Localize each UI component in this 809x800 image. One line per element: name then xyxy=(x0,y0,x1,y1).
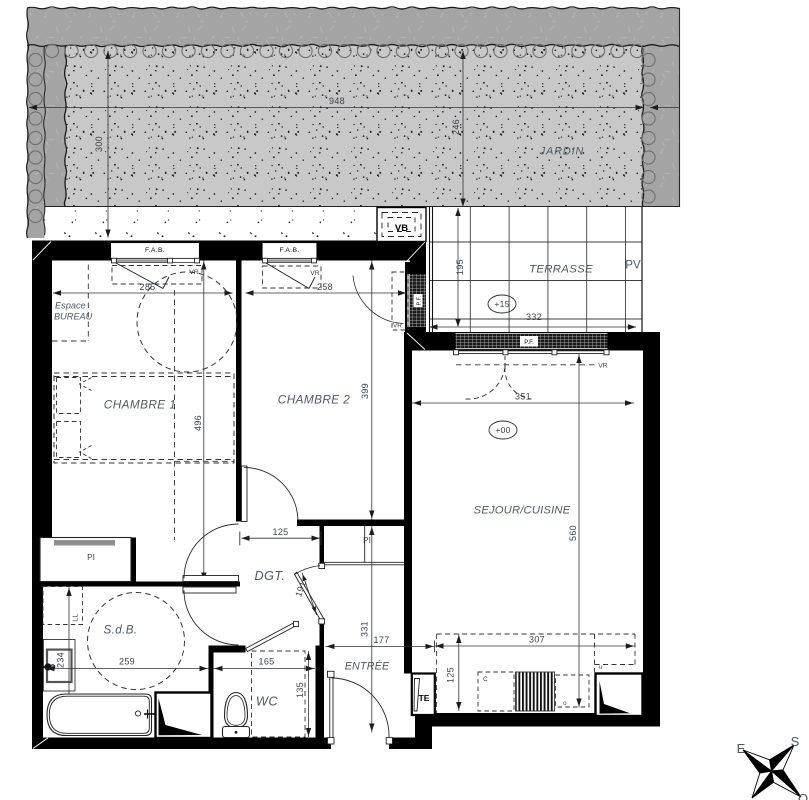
svg-text:Espace: Espace xyxy=(55,301,86,311)
svg-text:300: 300 xyxy=(94,136,104,152)
svg-text:CHAMBRE 2: CHAMBRE 2 xyxy=(278,393,350,407)
svg-text:VR: VR xyxy=(310,270,320,277)
svg-text:o: o xyxy=(563,700,567,707)
svg-text:PI: PI xyxy=(363,536,371,545)
svg-text:332: 332 xyxy=(526,312,542,322)
svg-text:399: 399 xyxy=(360,383,370,399)
svg-text:234: 234 xyxy=(56,652,66,668)
svg-text:F.A.B.: F.A.B. xyxy=(145,247,165,254)
svg-text:948: 948 xyxy=(329,96,345,106)
svg-text:u: u xyxy=(599,665,602,671)
svg-text:DGT.: DGT. xyxy=(255,569,286,583)
svg-text:560: 560 xyxy=(568,525,578,541)
svg-text:S: S xyxy=(791,734,800,749)
svg-text:307: 307 xyxy=(529,635,545,645)
svg-text:PV: PV xyxy=(625,259,641,272)
svg-text:191: 191 xyxy=(293,580,308,598)
svg-text:O: O xyxy=(798,791,808,800)
svg-text:JARDIN: JARDIN xyxy=(539,146,584,158)
svg-text:VR: VR xyxy=(598,363,608,370)
svg-text:246: 246 xyxy=(451,119,461,135)
svg-text:TE: TE xyxy=(419,693,430,703)
svg-text:LL: LL xyxy=(73,613,80,621)
svg-text:195: 195 xyxy=(455,259,465,275)
svg-text:331: 331 xyxy=(360,621,370,637)
svg-text:177: 177 xyxy=(374,635,390,645)
svg-text:+15: +15 xyxy=(494,299,509,309)
svg-text:BUREAU: BUREAU xyxy=(54,312,93,322)
svg-text:TERRASSE: TERRASSE xyxy=(529,264,593,276)
svg-text:125: 125 xyxy=(273,527,289,537)
svg-text:496: 496 xyxy=(193,415,203,431)
svg-text:+00: +00 xyxy=(495,425,510,435)
svg-text:ENTRÉE: ENTRÉE xyxy=(345,660,390,673)
svg-text:258: 258 xyxy=(317,282,333,292)
svg-text:135: 135 xyxy=(295,682,305,698)
svg-text:285: 285 xyxy=(140,282,156,292)
svg-text:S.d.B.: S.d.B. xyxy=(104,624,138,637)
svg-text:E: E xyxy=(737,741,746,756)
svg-text:259: 259 xyxy=(119,657,135,667)
svg-text:P.F.: P.F. xyxy=(524,340,534,346)
svg-text:WC: WC xyxy=(256,694,279,709)
svg-text:VB: VB xyxy=(395,223,408,234)
svg-text:SEJOUR/CUISINE: SEJOUR/CUISINE xyxy=(474,505,571,517)
svg-text:351: 351 xyxy=(515,392,531,402)
svg-text:F.A.B.: F.A.B. xyxy=(280,247,300,254)
svg-text:PI: PI xyxy=(87,553,95,562)
svg-text:125: 125 xyxy=(445,667,455,683)
svg-text:165: 165 xyxy=(259,657,275,667)
svg-text:C: C xyxy=(483,676,488,683)
svg-text:VR: VR xyxy=(393,323,402,330)
svg-text:CHAMBRE 1: CHAMBRE 1 xyxy=(104,398,176,412)
svg-text:P.F.: P.F. xyxy=(417,295,423,305)
